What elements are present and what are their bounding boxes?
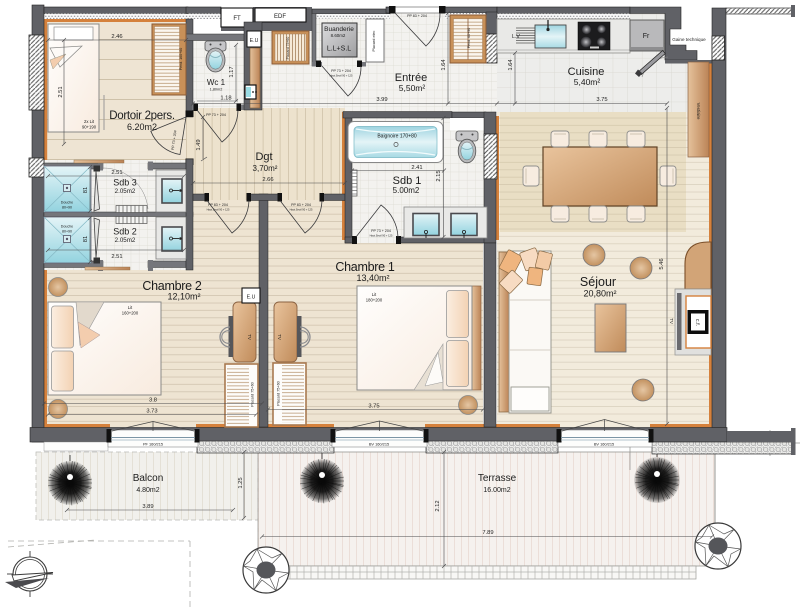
svg-text:2.05m2: 2.05m2: [115, 237, 136, 244]
svg-text:3.89: 3.89: [142, 504, 153, 510]
svg-text:PF 160/215: PF 160/215: [143, 442, 163, 447]
svg-text:4.80m2: 4.80m2: [136, 487, 159, 494]
svg-text:2.51: 2.51: [111, 254, 122, 260]
svg-text:Balcon: Balcon: [133, 473, 164, 484]
svg-text:1.17: 1.17: [229, 66, 235, 77]
svg-text:Haut.Seuil 90 + 125: Haut.Seuil 90 + 125: [207, 208, 230, 212]
svg-text:3.99: 3.99: [376, 97, 387, 103]
svg-text:3.75: 3.75: [368, 404, 379, 410]
svg-text:Haut.Seuil 90 + 125: Haut.Seuil 90 + 125: [370, 234, 393, 238]
svg-text:BV 160/215: BV 160/215: [594, 442, 614, 447]
svg-text:Vestiaire: Vestiaire: [696, 103, 701, 120]
svg-text:2.66: 2.66: [262, 177, 273, 183]
svg-text:81: 81: [83, 187, 89, 193]
svg-text:5,50m²: 5,50m²: [399, 83, 426, 93]
svg-text:FT: FT: [233, 16, 241, 22]
svg-text:Terrasse: Terrasse: [478, 473, 517, 484]
svg-text:81: 81: [83, 236, 89, 242]
svg-text:Baignoire 170+80: Baignoire 170+80: [377, 134, 417, 140]
svg-text:80+90: 80+90: [62, 230, 72, 234]
svg-text:3.75: 3.75: [596, 97, 607, 103]
svg-text:Buanderie: Buanderie: [324, 26, 354, 33]
svg-text:Pend. 160+60: Pend. 160+60: [179, 48, 183, 70]
svg-text:12,10m²: 12,10m²: [167, 292, 200, 302]
svg-text:Wc 1: Wc 1: [207, 78, 226, 87]
svg-text:PP 83 + 204: PP 83 + 204: [291, 203, 311, 207]
svg-text:Chambre 1: Chambre 1: [335, 260, 394, 274]
svg-text:Pend. 60+90: Pend. 60+90: [467, 28, 471, 48]
svg-text:1.25: 1.25: [238, 477, 244, 488]
svg-text:Placard 75+60: Placard 75+60: [277, 381, 281, 406]
svg-text:20,80m²: 20,80m²: [583, 289, 616, 299]
svg-text:2.41: 2.41: [411, 165, 422, 171]
svg-text:Placard 75+60: Placard 75+60: [286, 37, 290, 60]
svg-text:2.15: 2.15: [436, 170, 442, 181]
svg-text:L.V: L.V: [512, 34, 520, 40]
svg-text:2.05m2: 2.05m2: [115, 188, 136, 195]
svg-text:5.46: 5.46: [659, 258, 665, 269]
svg-text:BV 160/215: BV 160/215: [369, 442, 389, 447]
svg-text:160+200: 160+200: [122, 311, 139, 316]
svg-text:1.64: 1.64: [508, 59, 514, 71]
svg-text:PP 73 + 204: PP 73 + 204: [206, 113, 226, 117]
svg-text:L.L+S.L: L.L+S.L: [327, 46, 351, 53]
svg-text:6.20m2: 6.20m2: [127, 122, 157, 132]
svg-text:Dortoir 2pers.: Dortoir 2pers.: [109, 110, 175, 122]
svg-text:3,70m²: 3,70m²: [253, 164, 278, 173]
svg-text:3.73: 3.73: [146, 409, 157, 415]
svg-text:Placard 75+60: Placard 75+60: [251, 382, 255, 407]
svg-text:TV: TV: [247, 334, 252, 341]
svg-text:Dgt: Dgt: [255, 151, 272, 163]
svg-text:Sdb 2: Sdb 2: [113, 227, 137, 237]
svg-text:1.64: 1.64: [441, 59, 447, 71]
svg-text:16.00m2: 16.00m2: [483, 487, 510, 494]
svg-text:7.89: 7.89: [482, 530, 493, 536]
svg-text:c.f.: c.f.: [694, 319, 700, 326]
svg-text:1.49: 1.49: [196, 139, 202, 150]
svg-text:E.U: E.U: [250, 38, 259, 44]
svg-text:PP 73 + 204: PP 73 + 204: [371, 229, 391, 233]
svg-text:8.60m2: 8.60m2: [331, 33, 346, 38]
svg-text:Gaine technique: Gaine technique: [672, 37, 706, 42]
svg-text:1,80m2: 1,80m2: [210, 88, 223, 92]
svg-text:Douche: Douche: [61, 225, 73, 229]
svg-text:Séjour: Séjour: [580, 275, 616, 289]
svg-text:PP 83 + 204: PP 83 + 204: [208, 203, 228, 207]
svg-text:2x Lit: 2x Lit: [84, 119, 95, 124]
svg-text:180+200: 180+200: [366, 298, 383, 303]
svg-text:1.18: 1.18: [220, 96, 231, 102]
svg-text:TV: TV: [277, 334, 282, 341]
svg-text:5,40m²: 5,40m²: [574, 77, 601, 87]
svg-text:3.8: 3.8: [149, 398, 157, 404]
svg-text:E.U: E.U: [247, 295, 256, 301]
svg-text:5.00m2: 5.00m2: [393, 186, 420, 195]
svg-text:EDF: EDF: [274, 14, 286, 20]
svg-text:Placard elec: Placard elec: [372, 30, 376, 51]
svg-text:Haut.Seuil 90 + 125: Haut.Seuil 90 + 125: [330, 74, 353, 78]
svg-text:2.51: 2.51: [111, 170, 122, 176]
svg-text:Haut.Seuil 90 + 125: Haut.Seuil 90 + 125: [290, 208, 313, 212]
svg-text:13,40m²: 13,40m²: [356, 273, 389, 283]
svg-text:TV: TV: [669, 318, 674, 325]
svg-text:2.46: 2.46: [111, 34, 122, 40]
svg-text:Fr: Fr: [643, 33, 650, 40]
svg-text:PP 83 + 204: PP 83 + 204: [407, 14, 427, 18]
svg-text:80+90: 80+90: [62, 206, 72, 210]
svg-text:Douche: Douche: [61, 201, 73, 205]
svg-text:Sdb 3: Sdb 3: [113, 178, 137, 188]
svg-text:PP 73 + 204: PP 73 + 204: [331, 69, 351, 73]
svg-text:90+190: 90+190: [82, 125, 97, 130]
svg-text:2.12: 2.12: [435, 500, 441, 511]
svg-text:2.51: 2.51: [58, 86, 64, 97]
